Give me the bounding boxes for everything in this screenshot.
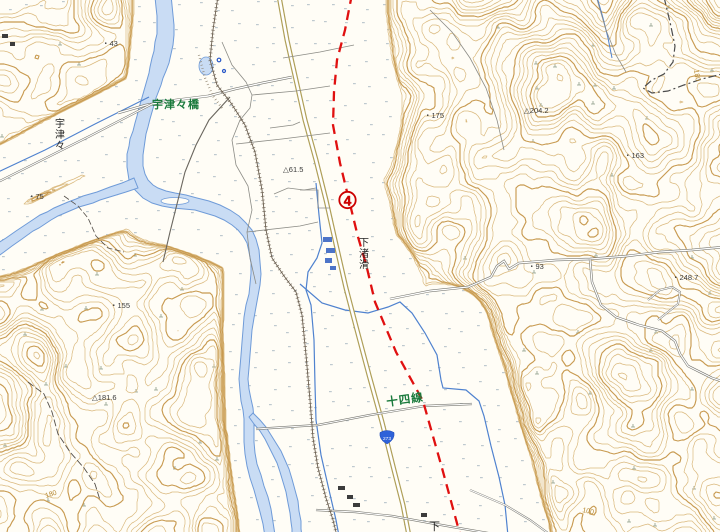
svg-text:・75: ・75: [28, 192, 44, 201]
svg-text:4: 4: [344, 193, 352, 208]
svg-text:・155: ・155: [110, 301, 130, 310]
svg-text:・93: ・93: [528, 262, 544, 271]
svg-text:々: 々: [55, 140, 65, 152]
svg-text:・163: ・163: [624, 151, 644, 160]
svg-text:宇: 宇: [55, 117, 65, 130]
svg-text:滑: 滑: [359, 259, 369, 271]
svg-text:下: 下: [429, 521, 440, 532]
svg-text:△181.6: △181.6: [92, 393, 117, 402]
svg-text:下: 下: [359, 238, 369, 249]
svg-text:渚: 渚: [359, 248, 369, 260]
svg-text:・248.7: ・248.7: [672, 273, 698, 282]
svg-text:・175: ・175: [424, 111, 444, 120]
svg-text:津: 津: [55, 129, 65, 141]
svg-text:273: 273: [383, 436, 391, 442]
svg-text:宇津々橋: 宇津々橋: [152, 97, 200, 111]
svg-text:△61.5: △61.5: [283, 165, 303, 174]
svg-text:・43: ・43: [102, 39, 118, 48]
svg-text:△204.2: △204.2: [524, 106, 549, 115]
